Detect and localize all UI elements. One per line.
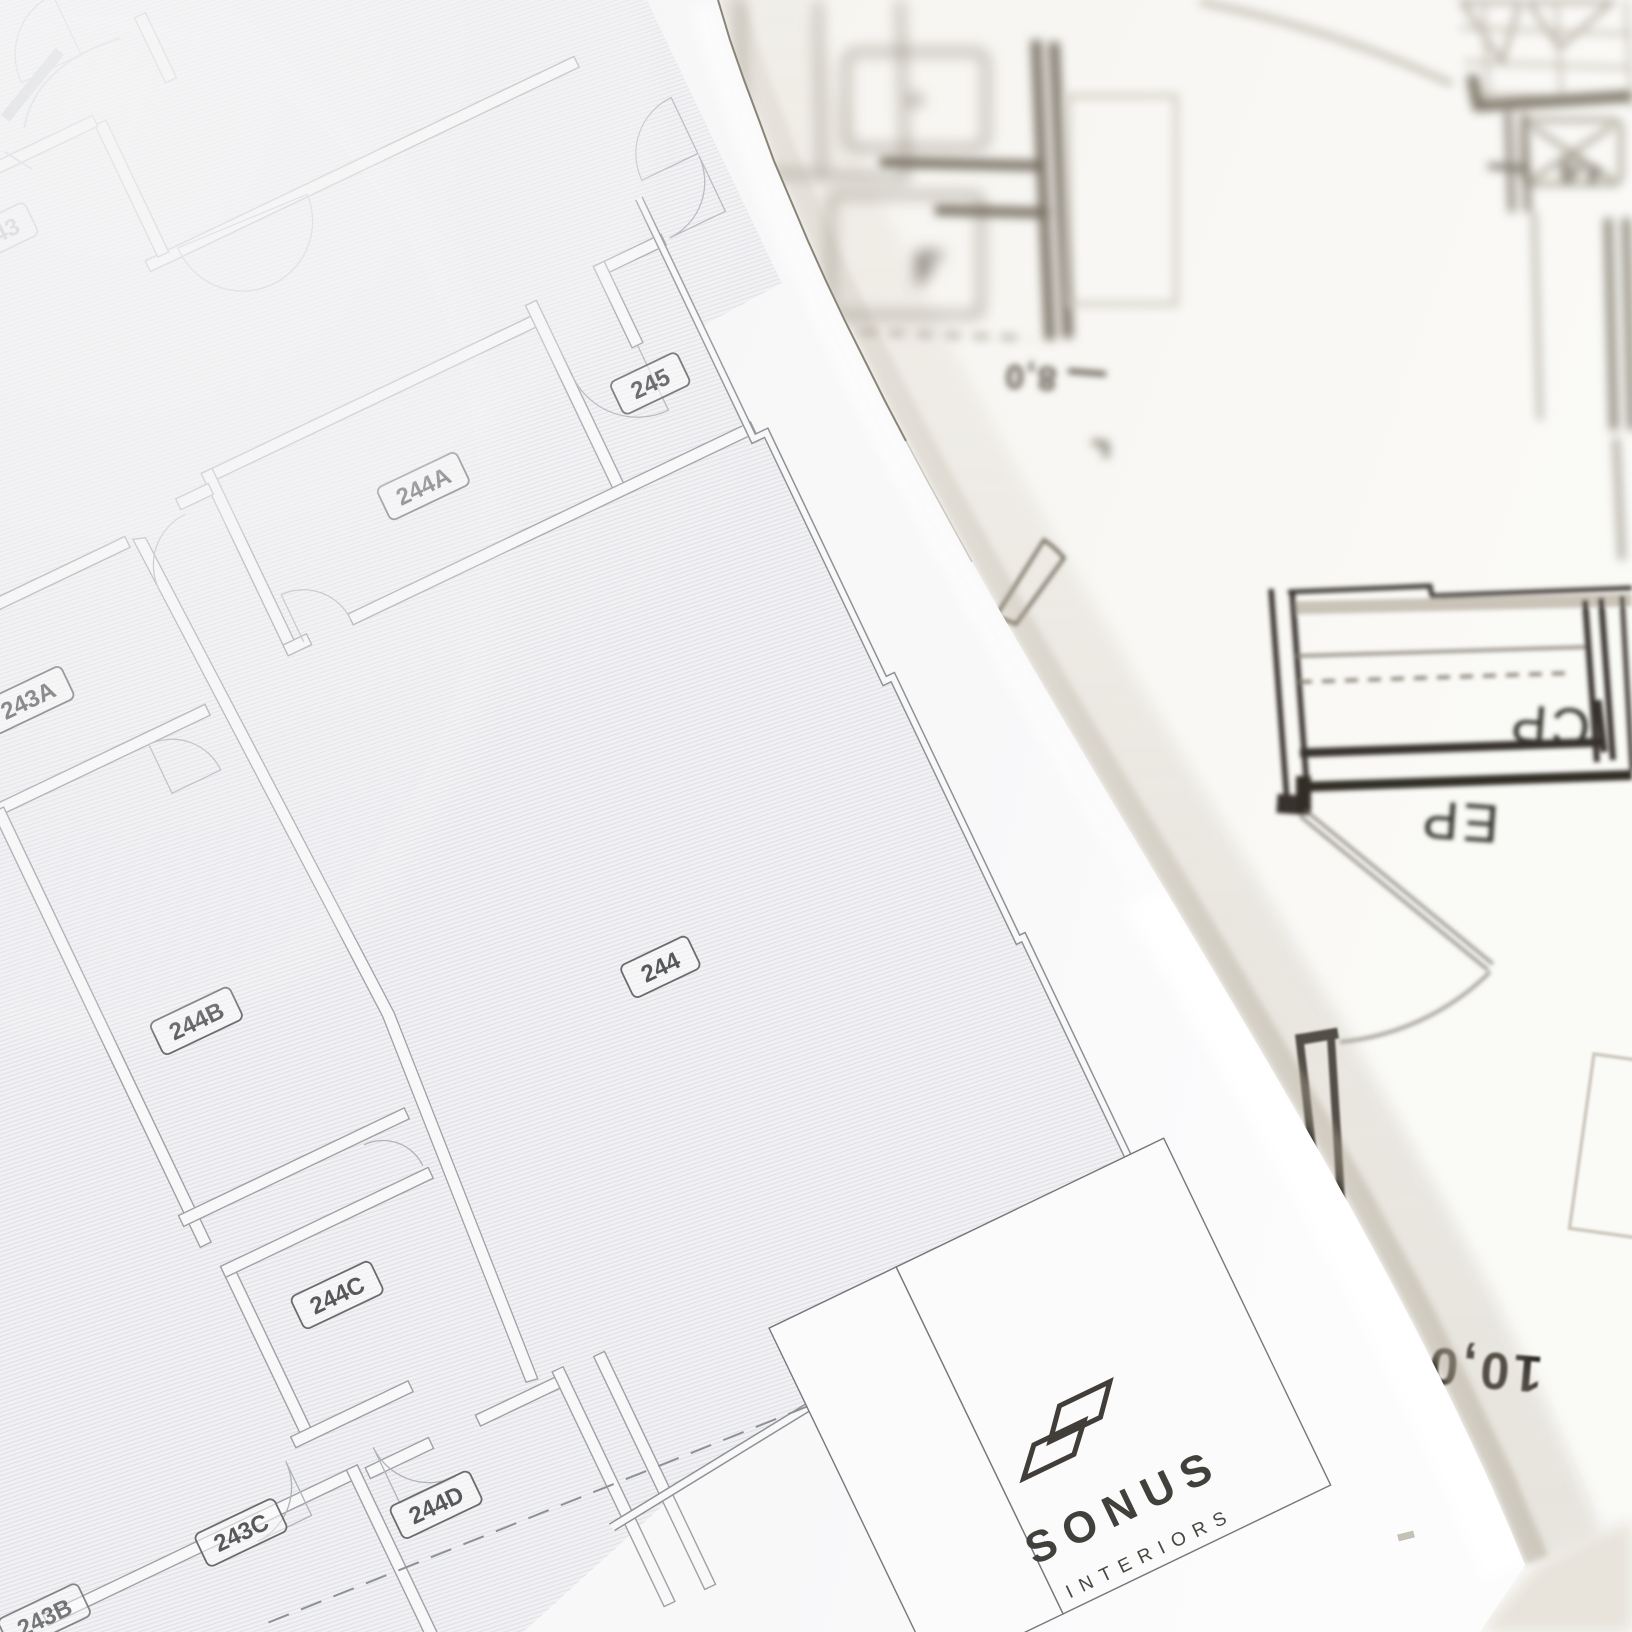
svg-text:4,0: 4,0 — [1557, 157, 1603, 190]
svg-text:8,0: 8,0 — [1002, 357, 1057, 398]
svg-text:EP: EP — [1417, 788, 1501, 853]
